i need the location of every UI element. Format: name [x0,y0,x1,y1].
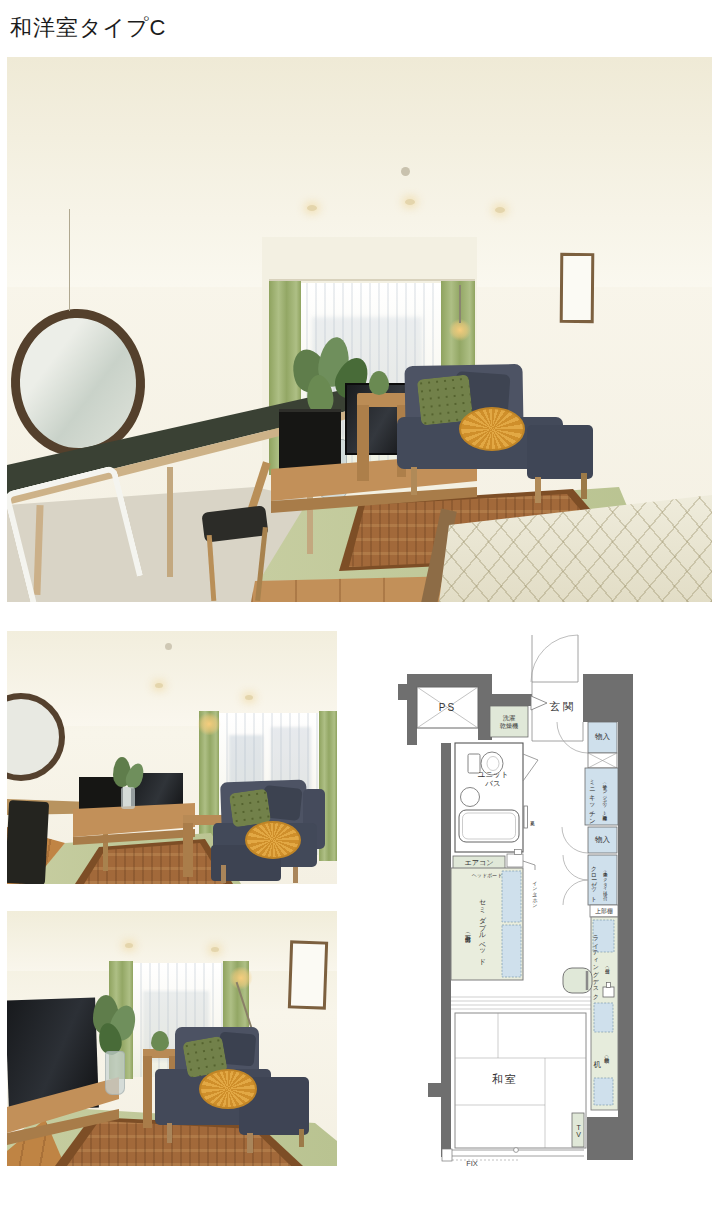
label-upper-shelf: 上部棚 [590,905,618,917]
side-table-panel [143,1056,152,1128]
downlight-icon [495,207,505,213]
table-plant [369,371,389,395]
unit-bath [455,743,538,852]
full-length-mirror-icon [524,806,528,828]
sofa-leg [299,1129,304,1147]
floor-step [451,997,591,1009]
label-aircon: エアコン [453,856,505,871]
hatch-box [588,753,617,768]
tatami-room-photo [7,911,337,1166]
label-closet-note: （小物入・ネクタイ掛け付） [602,857,607,904]
microwave [279,409,341,472]
ceiling [7,911,337,971]
downlight-icon [307,205,317,211]
mirror-cord [69,209,70,311]
plant-vase [105,1051,125,1095]
bed [451,868,523,980]
smoke-detector-icon [401,167,410,176]
label-mini-kitchen-note: （電子レンジ・ポット・冷蔵庫付） [602,770,607,824]
main-photo [7,57,712,602]
round-mirror [7,306,149,461]
page-title: 和洋室タイプC [10,13,166,43]
sofa-leg [167,1123,172,1143]
curtain-rail [269,279,475,281]
label-japanese-room: 和室 [481,1073,529,1086]
downlight-icon [125,943,133,948]
downlight-icon [211,947,219,952]
label-desk-note: （収納付） [603,1034,609,1074]
bath-door-icon [523,754,538,781]
label-storage-mid: 物入 [588,827,617,853]
downlight-icon [245,695,253,700]
living-photo [7,631,337,884]
intercom-icon [515,850,522,855]
label-bed-note: （下部引出付） [464,886,471,978]
label-writing-desk-note: （引出付） [604,948,610,982]
label-fix: FIX [457,1160,487,1169]
downlight-icon [155,683,163,688]
sofa-leg [411,467,417,495]
sofa-leg [581,473,587,499]
round-cushion [199,1069,257,1109]
label-tv: TV [574,1116,582,1146]
smoke-detector-icon [165,643,172,650]
label-mini-kitchen: ミニキッチン [589,772,596,824]
label-unit-bath: ユニット バス [468,771,518,788]
sofa-leg [247,1133,253,1153]
desk-leg [167,467,173,577]
sofa-leg [221,865,226,883]
label-desk: 机 [592,1046,601,1062]
floor-lamp-icon [197,713,221,735]
round-cushion [245,821,301,859]
plant-vase [121,787,135,809]
label-storage-top: 物入 [588,722,617,753]
downlight-icon [405,199,415,205]
label-entrance: 玄関 [541,700,585,712]
sofa-leg [293,867,298,883]
table-plant [151,1031,169,1051]
floor-plan: PS 洗濯 乾燥機 玄関 物入 （電子レンジ・ポット・冷蔵庫付） ミニキッチン … [395,630,640,1190]
desk-chair-icon [563,968,592,993]
floor-lamp-icon [229,967,253,989]
label-bed: セミダブルベッド [478,880,486,976]
sofa-ottoman [527,425,593,479]
side-table-panel [183,823,193,877]
intercom-pointer [523,861,535,870]
desk-lamp-icon [603,987,614,997]
sofa-leg [535,477,541,503]
desk-chair [7,800,49,884]
label-headboard: ヘッドボード [465,873,509,879]
pendant-cord [459,285,461,323]
side-table-panel [357,405,369,481]
bathtub-icon [459,810,519,842]
sink-icon [461,788,480,807]
label-intercom: インターホン [531,871,537,911]
wall-art-frame [288,940,328,1009]
label-ps: PS [417,687,478,728]
label-mirror: 姿見 [529,807,535,827]
fix-window [442,1148,584,1161]
round-cushion [459,407,525,451]
label-writing-desk: ライティングデスク [592,924,599,1004]
label-closet: クローゼット [590,860,597,902]
storage-doors [557,722,588,905]
label-washer-dryer: 洗濯 乾燥機 [490,706,528,737]
wall-art-frame [560,253,595,323]
headboard-shelf [507,854,523,867]
